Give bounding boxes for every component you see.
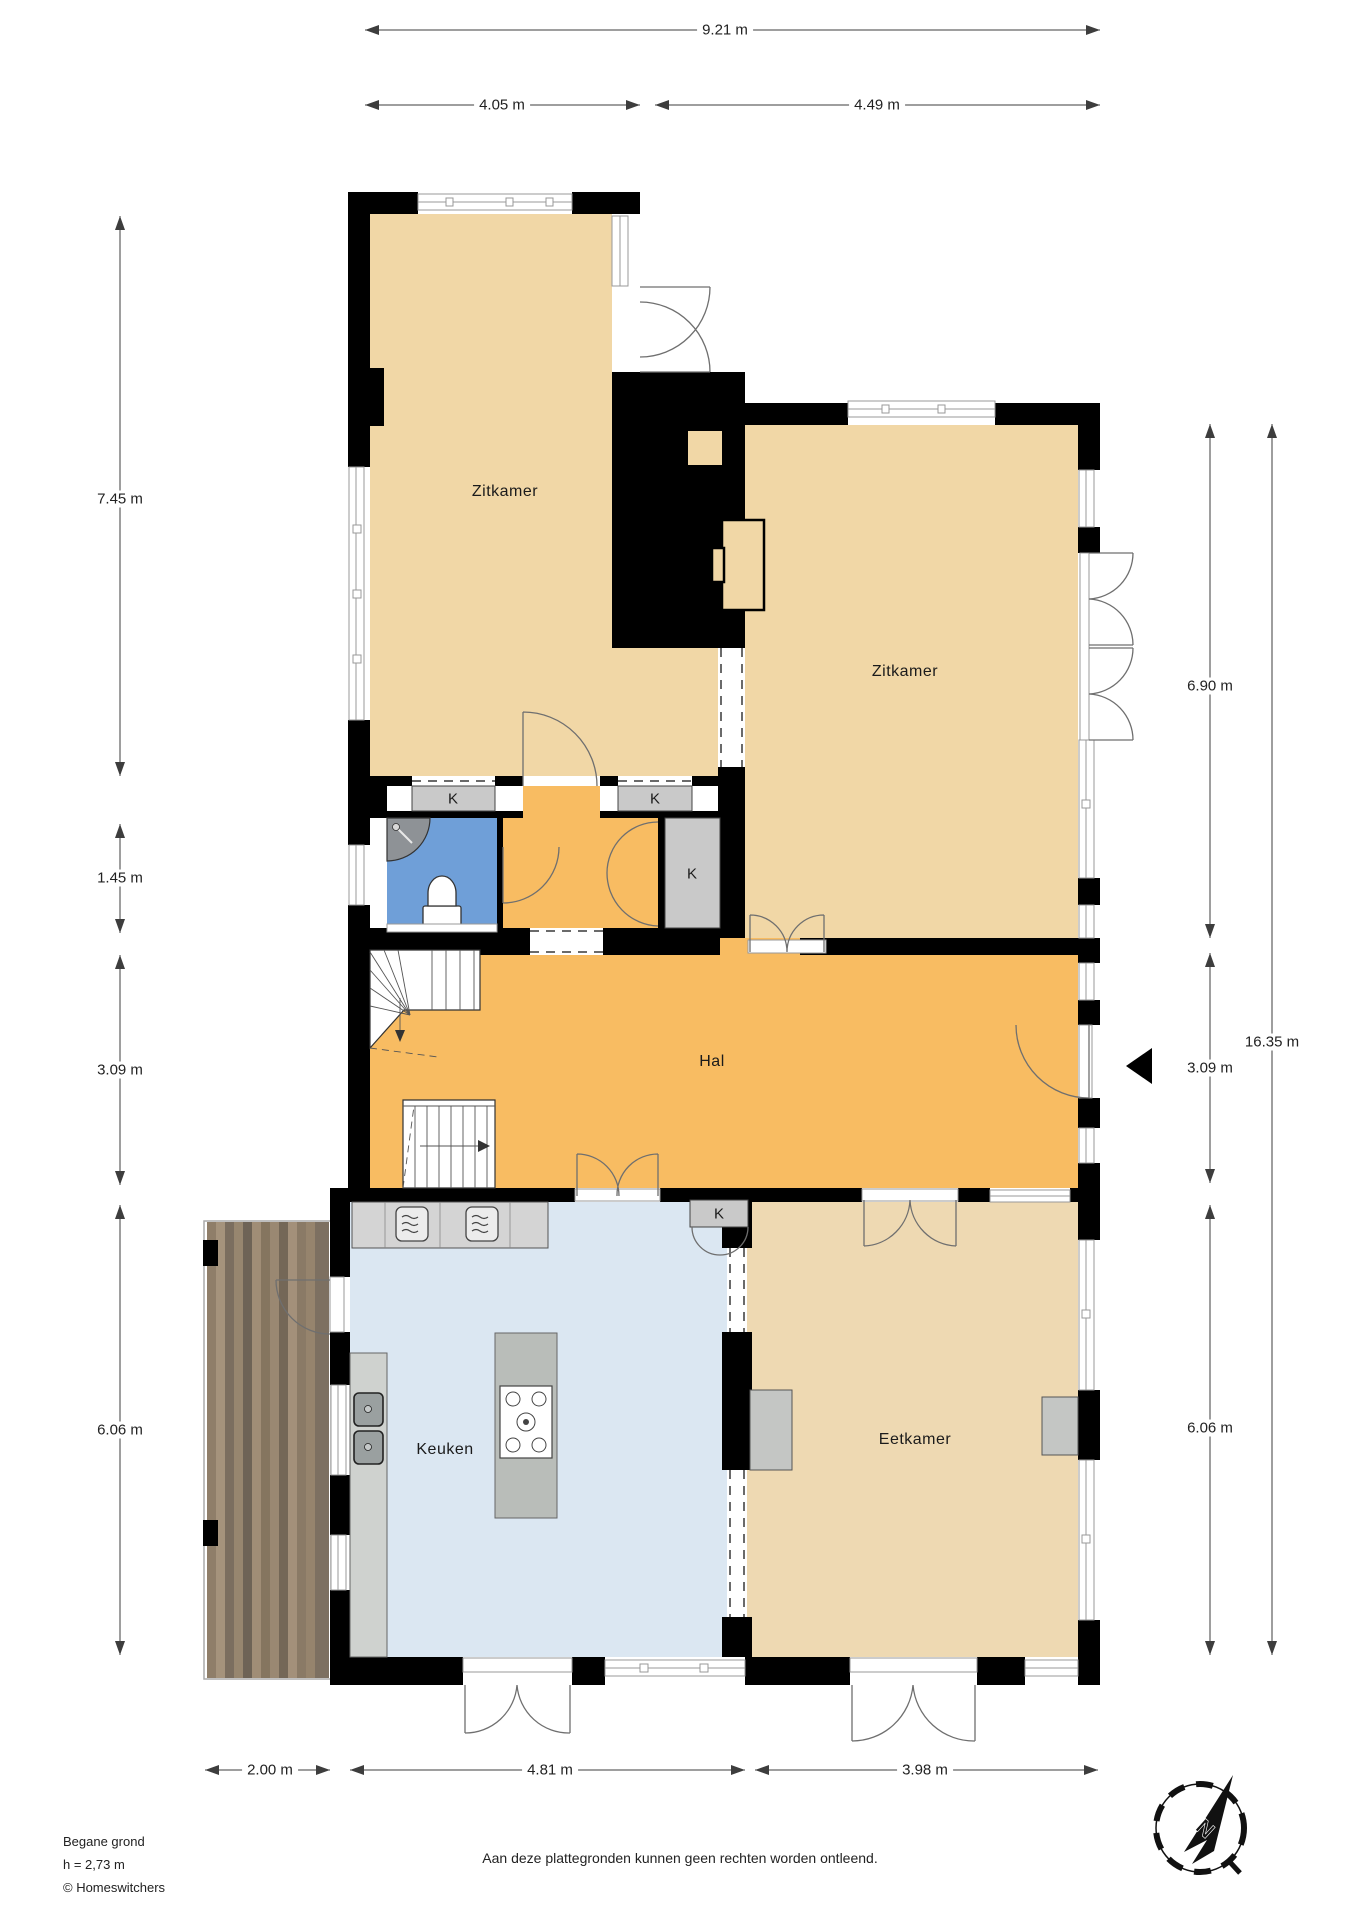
zitkamer-right-floor: [745, 425, 1078, 938]
eetkamer-floor: [745, 1202, 1078, 1657]
terrace-deck: [203, 1221, 331, 1679]
room-label-zitkamer-right: Zitkamer: [872, 663, 938, 681]
floorplan-canvas: N Zitkamer Zitkamer Hal Keuken Eetkamer …: [0, 0, 1358, 1920]
footer-floor-name: Begane grond: [63, 1834, 145, 1849]
door-zitkamer-right-garden: [1089, 553, 1133, 740]
eetkamer-sideboard-east: [1042, 1397, 1078, 1455]
closet-label: K: [448, 791, 458, 808]
eetkamer-cabinet-west: [750, 1390, 792, 1470]
room-label-eetkamer: Eetkamer: [879, 1431, 951, 1449]
footer-disclaimer: Aan deze plattegronden kunnen geen recht…: [482, 1850, 877, 1866]
kitchen-counter-top: [352, 1202, 548, 1248]
dim-left-zitkamer: 7.45 m: [92, 491, 148, 508]
fireplace-niche: [722, 520, 764, 610]
dim-top-left: 4.05 m: [474, 97, 530, 114]
entrance-marker: [1126, 1048, 1152, 1084]
dim-top-total: 9.21 m: [697, 22, 753, 39]
oven-icon: [466, 1207, 498, 1241]
dim-left-strip: 1.45 m: [92, 870, 148, 887]
gas-hob: [500, 1386, 552, 1458]
terrace-post: [203, 1240, 218, 1266]
fireplace-niche-notch: [712, 548, 724, 582]
compass-rose: N: [1156, 1775, 1244, 1873]
dim-right-zitkamer: 6.90 m: [1182, 678, 1238, 695]
straight-staircase: [403, 1100, 495, 1188]
dim-right-total: 16.35 m: [1240, 1034, 1304, 1051]
dim-left-keuken: 6.06 m: [92, 1422, 148, 1439]
chimney-recess: [688, 431, 722, 465]
vestibule-neck-floor: [523, 786, 600, 820]
dim-left-hal: 3.09 m: [92, 1062, 148, 1079]
door-zitkamer-left-exterior: [640, 287, 710, 372]
room-label-hal: Hal: [699, 1053, 725, 1071]
closet-label: K: [650, 791, 660, 808]
vestibule-floor: [503, 818, 658, 928]
footer-ceiling-height: h = 2,73 m: [63, 1857, 125, 1872]
dim-bottom-eetkamer: 3.98 m: [897, 1762, 953, 1779]
dim-bottom-terras: 2.00 m: [242, 1762, 298, 1779]
dim-top-right: 4.49 m: [849, 97, 905, 114]
oven-icon: [396, 1207, 428, 1241]
closet-label: K: [714, 1206, 724, 1223]
door-eetkamer-garden: [852, 1685, 975, 1741]
closet-label: K: [687, 866, 697, 883]
room-label-zitkamer-left: Zitkamer: [472, 483, 538, 501]
footer-copyright: © Homeswitchers: [63, 1880, 165, 1895]
terrace-post: [203, 1520, 218, 1546]
dim-bottom-keuken: 4.81 m: [522, 1762, 578, 1779]
room-label-keuken: Keuken: [416, 1441, 473, 1459]
door-keuken-garden: [465, 1685, 570, 1733]
floorplan-drawing: N: [0, 0, 1358, 1920]
dim-right-hal: 3.09 m: [1182, 1060, 1238, 1077]
dim-right-eetkamer: 6.06 m: [1182, 1420, 1238, 1437]
